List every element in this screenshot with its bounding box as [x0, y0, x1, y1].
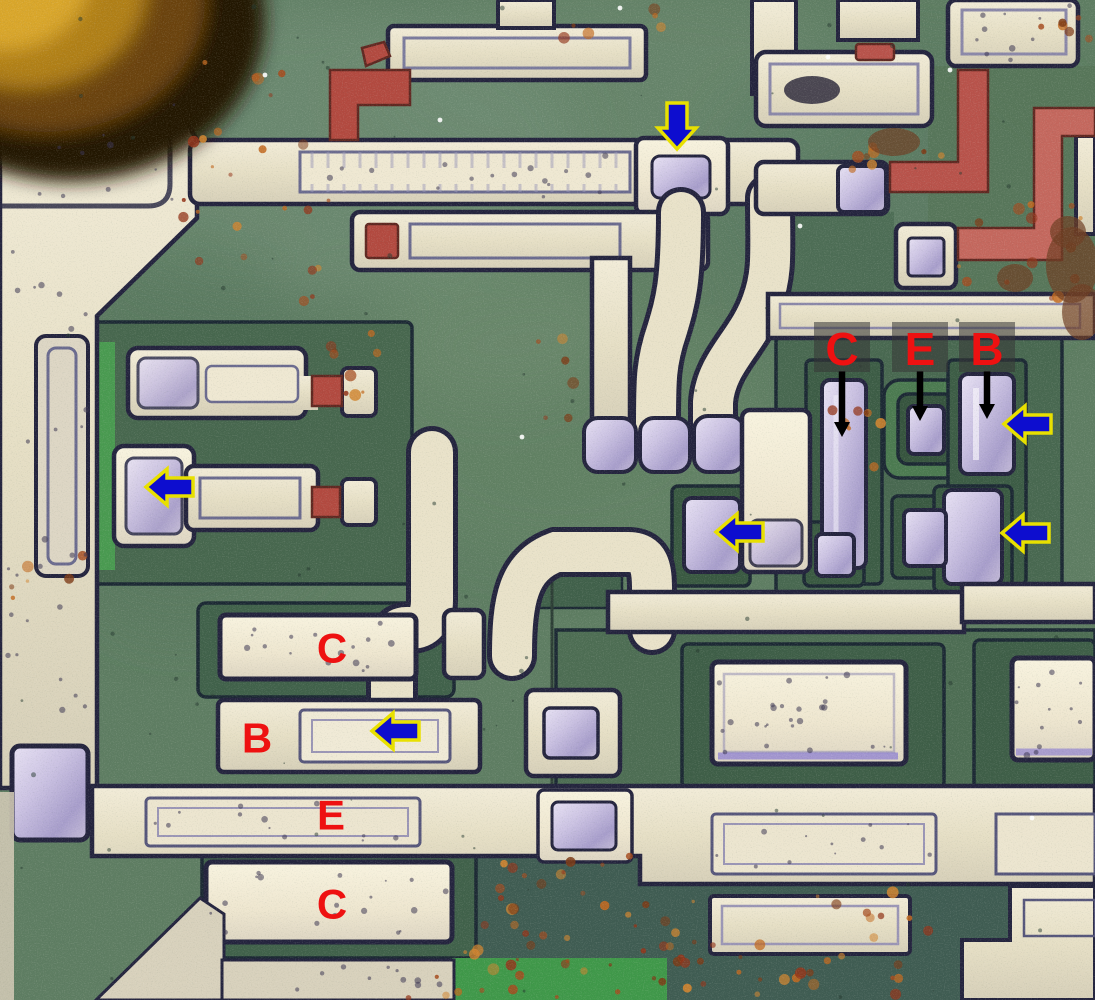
terminal-label-c: C — [317, 625, 347, 672]
terminal-label-b: B — [242, 715, 272, 762]
terminal-label-b: B — [970, 323, 1003, 375]
terminal-label-c: C — [825, 323, 858, 375]
terminal-label-c: C — [317, 881, 347, 928]
ic-die-micrograph: CEBCBEC — [0, 0, 1095, 1000]
terminal-label-e: E — [905, 323, 936, 375]
terminal-label-e: E — [317, 792, 345, 839]
